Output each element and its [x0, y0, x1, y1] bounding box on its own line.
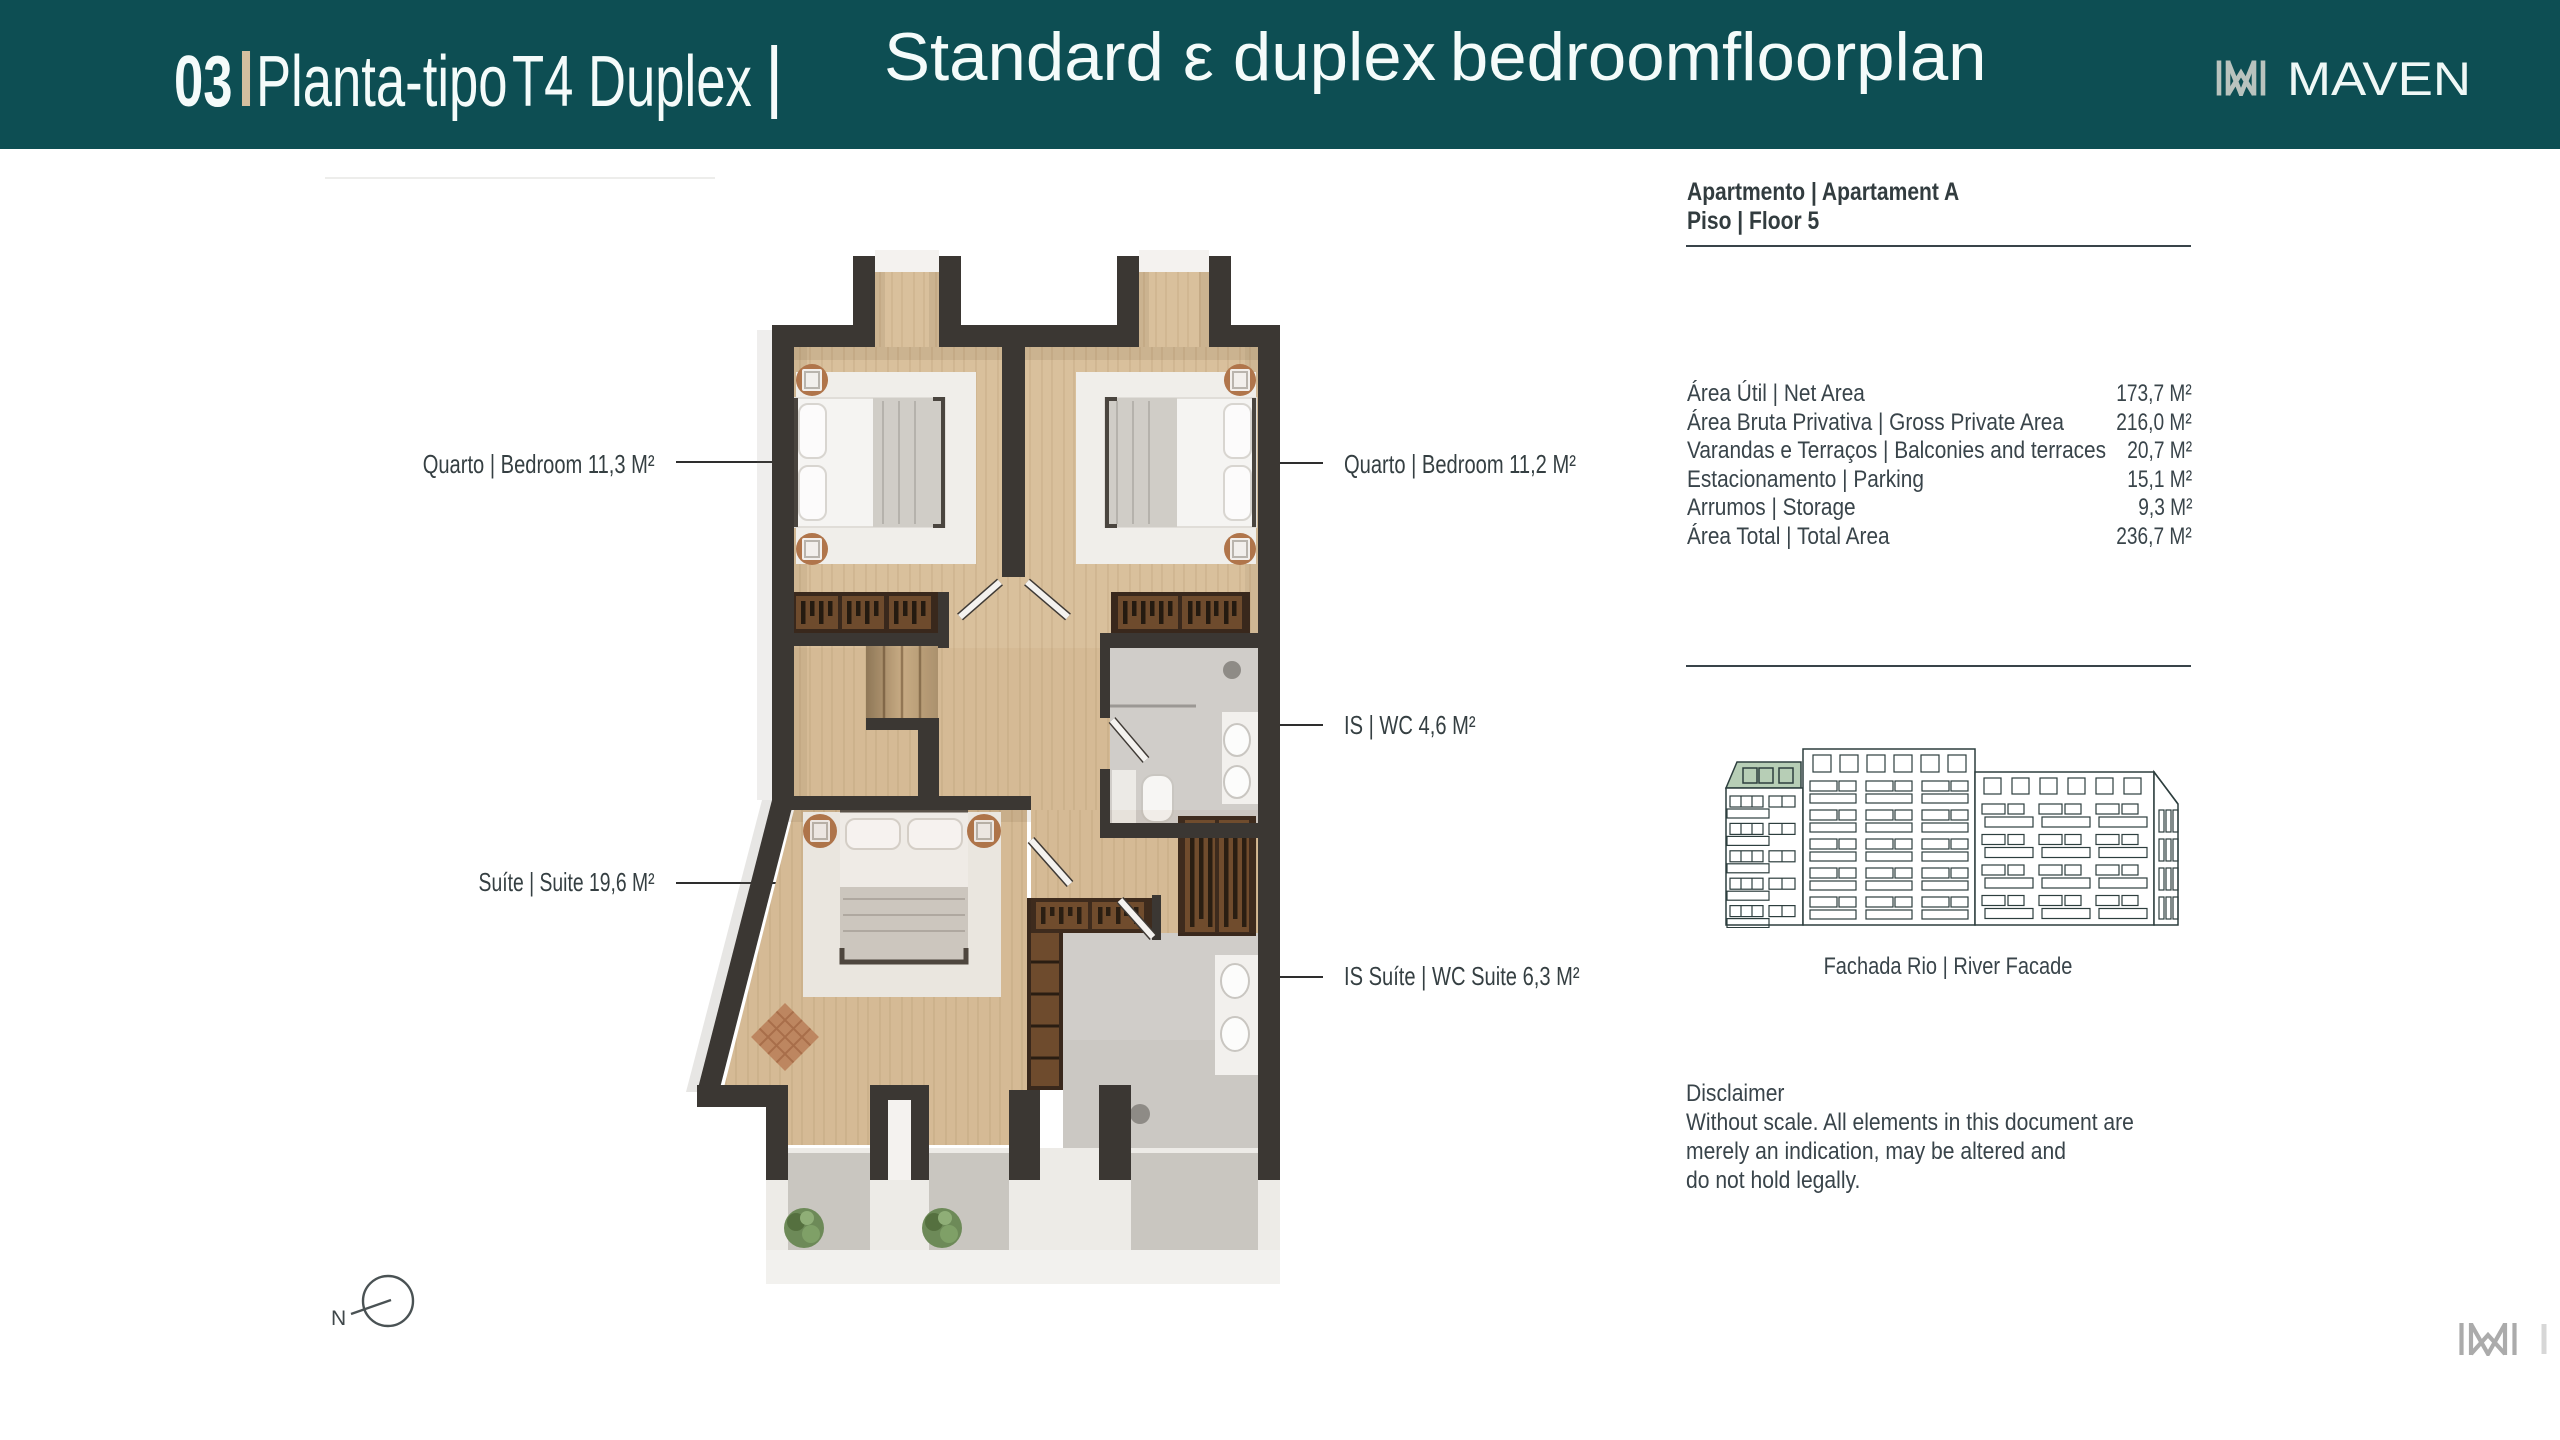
svg-text:N: N — [331, 1307, 346, 1330]
